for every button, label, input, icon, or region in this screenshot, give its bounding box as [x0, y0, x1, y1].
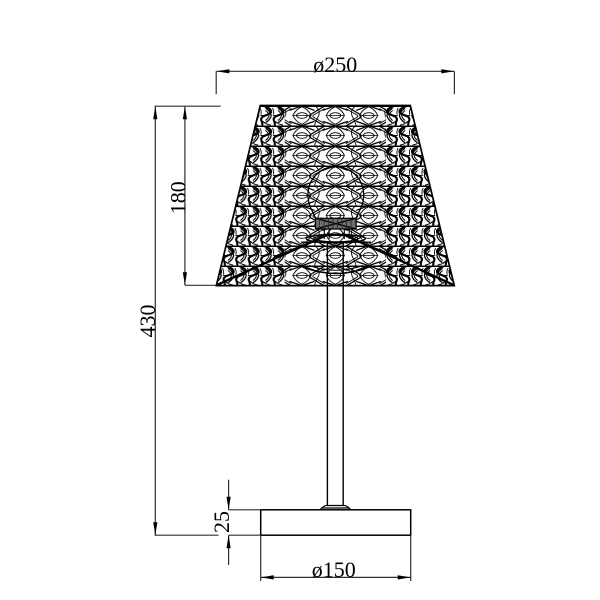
svg-text:25: 25 [209, 511, 234, 533]
svg-text:430: 430 [135, 305, 160, 338]
svg-text:ø250: ø250 [313, 52, 357, 77]
svg-text:ø150: ø150 [312, 557, 356, 582]
svg-text:180: 180 [165, 181, 190, 214]
